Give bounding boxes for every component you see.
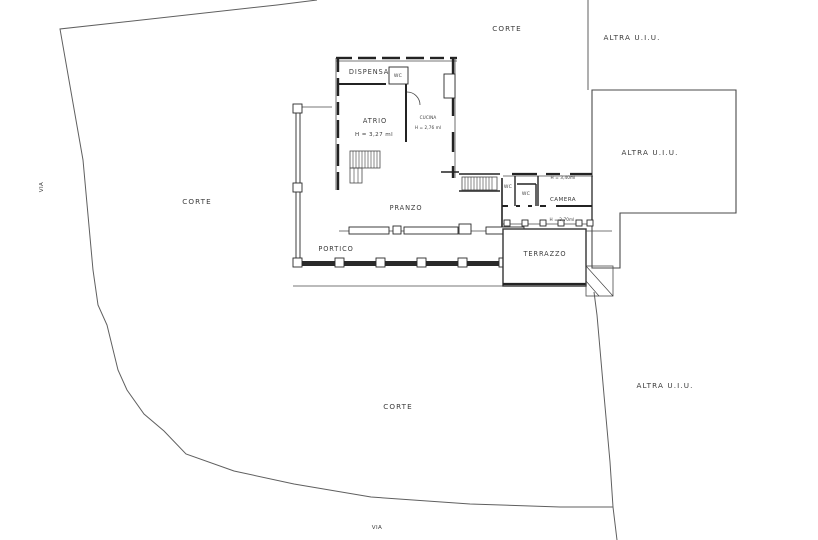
parapet xyxy=(404,227,458,234)
label-corte-bottom: CORTE xyxy=(383,402,413,411)
floor-plan-page: CORTE ALTRA U.I.U. ALTRA U.I.U. ALTRA U.… xyxy=(0,0,818,540)
label-via-left: VIA xyxy=(39,182,45,193)
atrio-stair xyxy=(350,151,380,183)
label-camera-height: H = 3,40ml xyxy=(551,175,576,180)
label-room-dispensa: DISPENSA xyxy=(349,68,389,76)
parapet xyxy=(349,227,389,234)
label-room-atrio: ATRIO xyxy=(363,117,387,125)
label-room-wc2: WC xyxy=(522,191,530,197)
label-room-wc-dispensa: WC xyxy=(394,73,402,79)
label-altra-uiu-building: ALTRA U.I.U. xyxy=(622,148,679,157)
label-altra-uiu-top: ALTRA U.I.U. xyxy=(604,33,661,42)
adjacent-building xyxy=(592,90,736,268)
label-room-terrazzo: TERRAZZO xyxy=(522,250,566,258)
label-corte-left: CORTE xyxy=(182,197,212,206)
pillar xyxy=(393,226,401,234)
label-altra-uiu-bottom: ALTRA U.I.U. xyxy=(637,381,694,390)
pillar xyxy=(444,74,455,98)
loggia-columns xyxy=(504,220,593,226)
label-room-portico: PORTICO xyxy=(318,245,353,253)
floor-plan-canvas: CORTE ALTRA U.I.U. ALTRA U.I.U. ALTRA U.… xyxy=(0,0,818,540)
label-via-bottom: VIA xyxy=(372,525,383,531)
label-room-cucina: CUCINA xyxy=(420,115,437,120)
door-arc xyxy=(407,92,420,105)
label-room-camera: CAMERA xyxy=(550,197,576,203)
label-cucina-height: H = 2,76 ml xyxy=(415,125,441,130)
label-corte-top: CORTE xyxy=(492,24,522,33)
pillar xyxy=(459,224,471,234)
service-stair xyxy=(462,177,497,190)
label-room-pranzo: PRANZO xyxy=(390,204,423,212)
label-atrio-height: H = 3,27 ml xyxy=(355,132,393,138)
label-room-wc1: WC xyxy=(504,184,512,190)
label-loggia-height: H = 2,70ml xyxy=(550,217,575,222)
external-stair xyxy=(586,266,613,296)
